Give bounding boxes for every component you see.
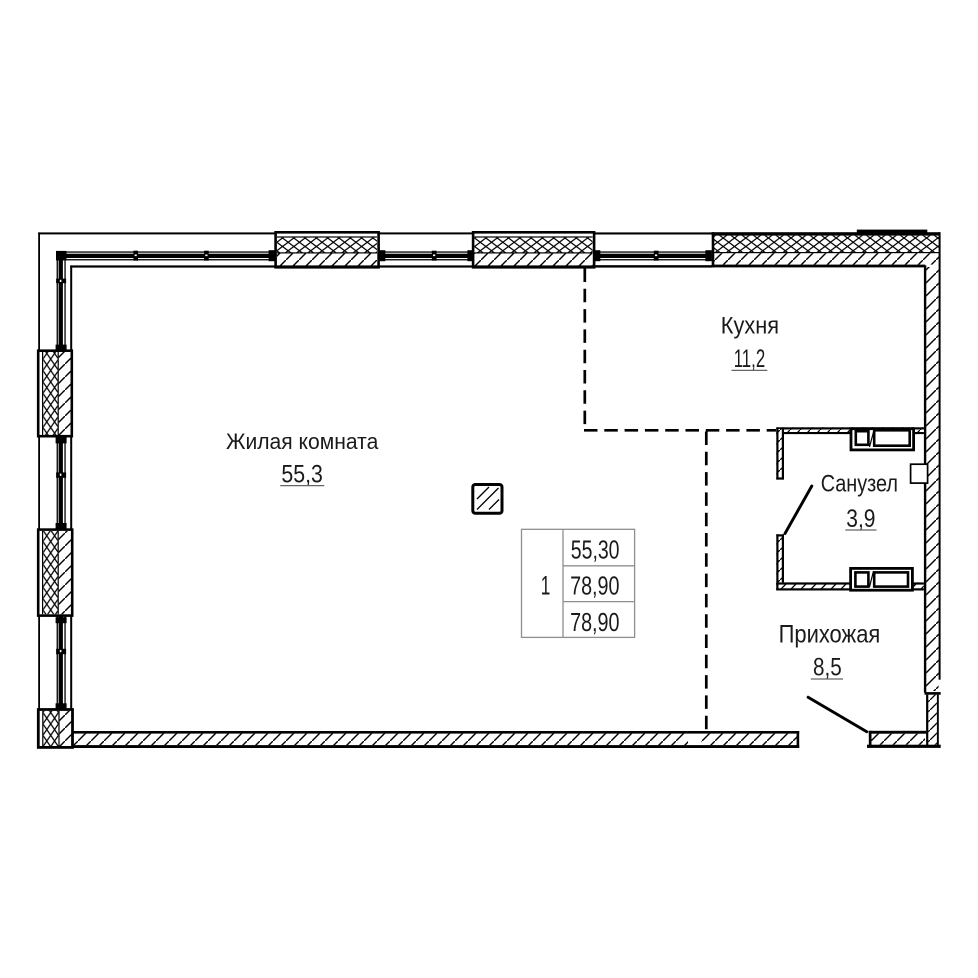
svg-text:78,90: 78,90 xyxy=(570,571,619,601)
svg-text:3,9: 3,9 xyxy=(846,506,875,533)
svg-text:55,3: 55,3 xyxy=(281,461,323,488)
svg-text:Кухня: Кухня xyxy=(721,313,779,340)
svg-text:Жилая комната: Жилая комната xyxy=(226,429,379,454)
svg-text:1: 1 xyxy=(541,570,551,600)
svg-text:Санузел: Санузел xyxy=(821,470,898,497)
svg-text:8,5: 8,5 xyxy=(813,655,842,682)
svg-text:Прихожая: Прихожая xyxy=(779,620,881,648)
svg-text:55,30: 55,30 xyxy=(571,535,620,565)
svg-text:78,90: 78,90 xyxy=(570,607,619,637)
svg-text:11,2: 11,2 xyxy=(734,346,766,373)
